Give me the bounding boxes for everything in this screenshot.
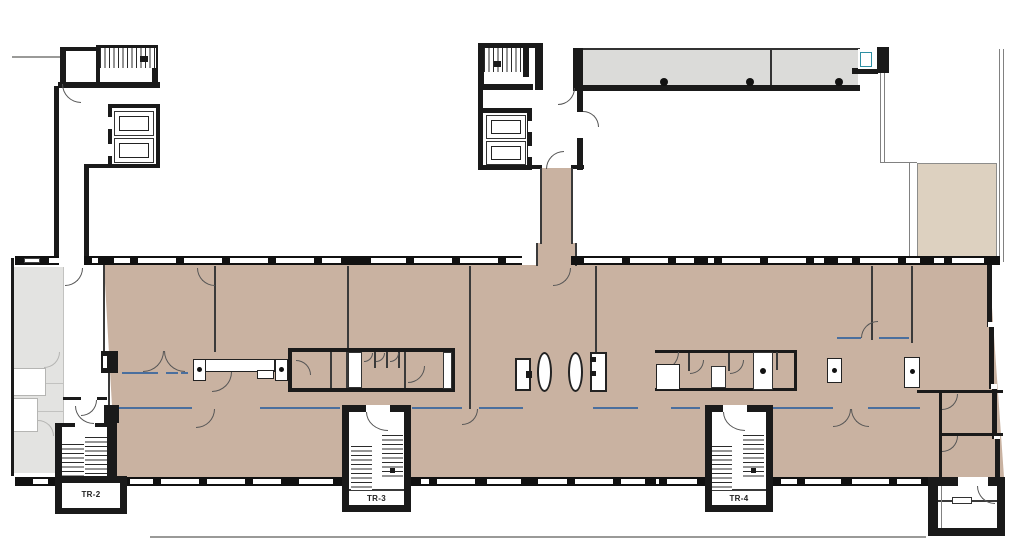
door-arc xyxy=(62,84,81,103)
door-opening xyxy=(958,477,988,486)
shaft xyxy=(348,352,362,388)
window-mark xyxy=(952,497,972,504)
wall xyxy=(928,477,938,535)
window-pier xyxy=(841,477,852,486)
stairwell-label-tr4: TR-4 xyxy=(705,493,773,505)
glass-partition xyxy=(181,372,188,374)
window-mark xyxy=(103,356,107,368)
floor-plan: TR-2 TR-3 TR-4 xyxy=(0,0,1024,541)
door-arc xyxy=(558,88,575,105)
pod-lens xyxy=(568,352,583,392)
stair-arrow xyxy=(751,468,756,473)
stair-arrow xyxy=(140,56,148,62)
rooftop-fixture xyxy=(860,52,872,67)
window-pier xyxy=(410,477,421,486)
pod-lens xyxy=(537,352,552,392)
window-mark xyxy=(991,384,997,389)
window-wall xyxy=(15,477,1004,486)
elevator-door xyxy=(528,146,532,157)
window-pier xyxy=(694,256,708,265)
window-pier xyxy=(476,477,487,486)
wall-thin xyxy=(776,352,778,370)
wall xyxy=(288,348,292,392)
column-dot xyxy=(760,368,766,374)
glass-partition xyxy=(412,407,462,409)
glass-partition xyxy=(868,407,920,409)
window-pier xyxy=(98,256,114,265)
line-thin xyxy=(941,486,942,528)
adjacent-room xyxy=(12,398,38,432)
elevator-car-inner xyxy=(491,146,521,160)
band-right-wall xyxy=(995,439,1000,479)
wall-thin xyxy=(404,352,406,388)
band-left-wall xyxy=(11,258,14,476)
wall xyxy=(535,43,543,90)
wall xyxy=(877,47,889,73)
wall-thin xyxy=(330,352,332,388)
column-dot xyxy=(197,367,202,372)
stairwell-label-tr3: TR-3 xyxy=(342,493,411,505)
terrace-area xyxy=(917,163,997,258)
roof-parapet xyxy=(583,85,860,91)
roof-area xyxy=(583,49,858,86)
elevator-door xyxy=(108,117,112,129)
door-arc xyxy=(583,111,599,127)
roof-edge-line xyxy=(583,48,860,50)
wall-thin xyxy=(347,266,349,350)
wall-thin xyxy=(911,266,913,343)
stair-treads xyxy=(743,435,764,480)
wall xyxy=(590,371,596,376)
elevator-door xyxy=(528,121,532,132)
wall xyxy=(590,357,596,362)
site-line xyxy=(12,56,60,58)
band-right-wall xyxy=(987,265,992,327)
wall xyxy=(478,84,533,90)
column xyxy=(746,78,754,86)
stair-treads xyxy=(484,48,522,72)
door-arc xyxy=(65,268,83,286)
window-pier xyxy=(15,477,33,486)
wall xyxy=(54,86,59,258)
glass-partition xyxy=(119,407,192,409)
wall-thin xyxy=(469,266,471,409)
line-thin xyxy=(884,71,885,163)
door-arc xyxy=(546,151,564,169)
glass-partition xyxy=(593,407,638,409)
fixture-box xyxy=(711,366,726,388)
glass-partition xyxy=(122,372,158,374)
wall xyxy=(84,168,89,258)
wall-thin xyxy=(595,266,597,352)
sink-fixture xyxy=(656,364,680,390)
wall xyxy=(63,397,81,400)
window-wall xyxy=(576,256,1000,265)
door-opening xyxy=(366,405,390,412)
window-pier xyxy=(984,256,1000,265)
wall xyxy=(794,350,797,391)
window-pier xyxy=(341,256,371,265)
wall xyxy=(55,423,62,478)
wall xyxy=(97,397,107,400)
line-thin xyxy=(909,163,910,258)
line-thin xyxy=(880,162,917,163)
stair-arrow xyxy=(390,468,395,473)
stairwell-label-tr2: TR-2 xyxy=(57,489,125,501)
column-dot xyxy=(279,367,284,372)
column-dot xyxy=(832,368,837,373)
wall-thin xyxy=(386,352,388,368)
window-pier xyxy=(920,256,934,265)
window-wall xyxy=(84,256,522,265)
stair-treads xyxy=(712,446,732,490)
band-right-wall xyxy=(989,327,994,389)
glass-partition xyxy=(479,407,523,409)
entrance-door xyxy=(24,258,40,263)
stair-treads xyxy=(351,446,372,490)
window-pier xyxy=(527,477,538,486)
line-thin xyxy=(1003,49,1004,262)
stair-arrow xyxy=(494,61,501,67)
stair-treads xyxy=(85,437,107,477)
wall xyxy=(478,90,483,108)
wall xyxy=(523,43,529,77)
wall-thin xyxy=(103,265,105,353)
glass-partition xyxy=(166,372,178,374)
wall xyxy=(573,48,583,91)
wall xyxy=(104,405,119,423)
column xyxy=(835,78,843,86)
roof-divider-line xyxy=(770,49,772,86)
elevator-car-inner xyxy=(119,143,149,158)
glass-partition xyxy=(837,337,861,339)
wall xyxy=(526,371,532,378)
glass-partition xyxy=(260,407,340,409)
line-thin xyxy=(999,49,1000,262)
window-pier xyxy=(645,477,656,486)
wall-thin xyxy=(108,373,110,407)
wall xyxy=(288,348,455,352)
wall xyxy=(107,423,117,478)
fixture-box xyxy=(443,352,452,389)
window-pier xyxy=(281,477,292,486)
wall-thin xyxy=(540,168,542,244)
wall xyxy=(997,477,1005,536)
column xyxy=(660,78,668,86)
wall xyxy=(917,390,1003,393)
band-right-wall xyxy=(992,389,997,439)
line-thin xyxy=(880,71,881,163)
wall-thin xyxy=(571,168,573,244)
door-opening xyxy=(723,405,747,412)
glass-partition xyxy=(879,337,909,339)
fixture-box xyxy=(257,370,274,379)
wall xyxy=(928,528,1005,536)
glass-partition xyxy=(772,407,833,409)
window-pier xyxy=(571,256,583,265)
window-mark xyxy=(988,322,994,327)
elevator-car-inner xyxy=(119,116,149,131)
column-dot xyxy=(910,369,915,374)
stair-treads xyxy=(382,435,403,480)
wall xyxy=(288,388,455,392)
wall xyxy=(60,47,100,51)
adjacent-room xyxy=(12,368,46,396)
door-arc xyxy=(75,406,94,424)
window-pier xyxy=(824,256,838,265)
corridor-fill xyxy=(542,168,572,244)
glass-partition xyxy=(671,407,700,409)
ground-line xyxy=(150,536,926,538)
stair-treads xyxy=(62,444,84,477)
wall-thin xyxy=(536,243,538,266)
corridor-fill xyxy=(538,243,575,267)
elevator-car-inner xyxy=(491,120,521,134)
elevator-door xyxy=(108,144,112,156)
